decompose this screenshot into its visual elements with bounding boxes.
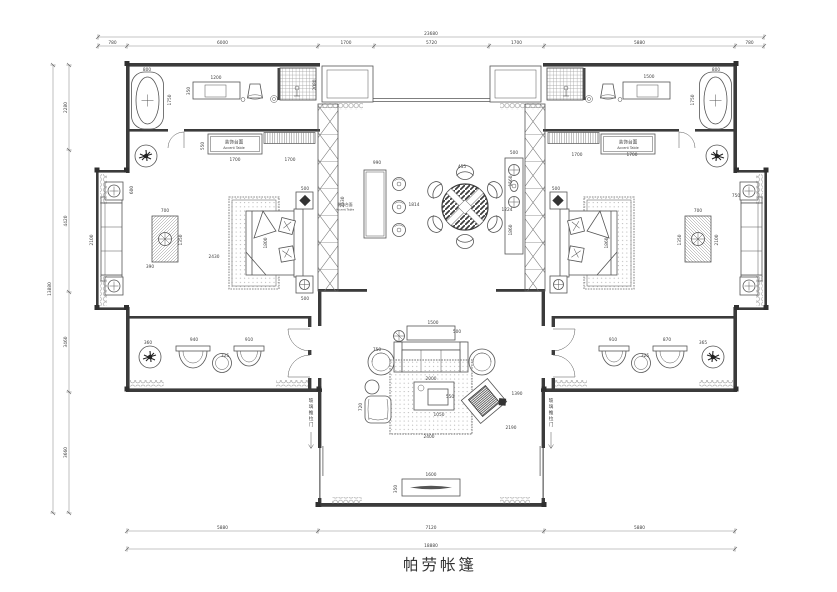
plan-label: Accent Table [223, 146, 244, 150]
dimension-text: 1700 [627, 152, 638, 158]
porch-coffee-table [152, 216, 178, 262]
bar-stool [393, 201, 406, 214]
vanity-chair [248, 84, 263, 99]
dining-table [442, 184, 488, 230]
dimension-text: 1050 [434, 412, 445, 418]
dimension-text: 2400 [424, 434, 435, 440]
dimension-chain: 78060001700572017005880780 [96, 40, 766, 48]
dimension-value: 5880 [634, 40, 645, 46]
dimension-text: 2000 [426, 376, 437, 382]
bathtub [132, 72, 164, 129]
dimension-value: 780 [108, 40, 116, 46]
dimension-text: 2080 [312, 79, 318, 90]
dimension-text: 325 [221, 353, 229, 359]
dimension-text: 1500 [428, 320, 439, 326]
left-wing [95, 61, 368, 507]
dimension-text: 350 [393, 485, 399, 493]
dimension-text: 1750 [167, 94, 173, 105]
shower [278, 68, 317, 100]
dimension-text: 1350 [178, 234, 184, 245]
tv-console [402, 479, 460, 496]
dining-chair [457, 235, 474, 249]
plan-label: 装饰台面 [619, 139, 638, 146]
plan-label: Accent Table [617, 146, 638, 150]
dimension-text: 990 [373, 160, 381, 166]
lounge-chair [365, 380, 391, 423]
plan-label: 装饰台面 [225, 139, 244, 146]
vanity-cabinet [193, 82, 278, 103]
dimension-text: 1700 [572, 152, 583, 158]
dimension-text: 455 [458, 164, 466, 170]
console-behind-sofa [394, 326, 456, 342]
dimension-text: 750 [373, 347, 381, 353]
plan-label: 装饰台面 [337, 202, 352, 207]
dimension-value: 5720 [426, 40, 437, 46]
dimension-value: 2280 [63, 102, 69, 113]
dimension-value: 780 [745, 40, 753, 46]
dimension-text: 2100 [89, 234, 95, 245]
dimension-text: 350 [186, 87, 192, 95]
curtain [500, 103, 541, 110]
porch-curtain [100, 276, 107, 306]
dimension-text: 700 [161, 208, 169, 214]
curtain [322, 103, 363, 110]
plant [139, 346, 161, 368]
curtain [130, 380, 164, 387]
bar-stool [393, 178, 406, 191]
plant [135, 145, 157, 167]
dimension-chain: 18880 [125, 543, 737, 551]
dimension-text: 1800 [263, 237, 269, 248]
plan-label: Accent Table [336, 208, 354, 212]
dimension-text: 940 [190, 337, 198, 343]
dimension-text: 2190 [506, 425, 517, 431]
dimension-chain: 2280442034603660 [63, 63, 71, 515]
plan-label: 玻璃推拉门 [309, 397, 314, 428]
dimension-value: 6000 [217, 40, 228, 46]
dimension-chain: 588071205880 [125, 525, 737, 533]
dimension-chain: 23680 [96, 31, 766, 39]
dimension-text: 1200 [211, 75, 222, 81]
dimension-text: 800 [712, 67, 720, 73]
dimension-value: 18880 [424, 543, 438, 549]
dimension-text: 500 [301, 186, 309, 192]
dimension-value: 3460 [63, 336, 69, 347]
dimension-text: 1860 [604, 237, 610, 248]
dimension-text: 1700 [285, 157, 296, 163]
dimension-text: 700 [694, 208, 702, 214]
dimension-text: 910 [609, 337, 617, 343]
dimension-text: 500 [453, 329, 461, 335]
dimension-value: 7120 [426, 525, 437, 531]
dimension-text: 325 [641, 353, 649, 359]
dimension-value: 1700 [341, 40, 352, 46]
service-counter [505, 158, 523, 254]
dimension-text: 870 [663, 337, 671, 343]
drawing-title: 帕劳帐篷 [403, 555, 477, 574]
dimension-text: 600 [129, 186, 135, 194]
dimension-value: 13880 [47, 282, 53, 296]
dimension-text: 360 [144, 340, 152, 346]
dimension-text: 1600 [426, 472, 437, 478]
slide-door-arrow [309, 432, 314, 449]
slide-door-arrow [549, 432, 554, 449]
dimension-text: 1350 [677, 234, 683, 245]
dimension-text: 1814 [409, 202, 420, 208]
porch-sofa [101, 197, 122, 281]
swivel-chair [469, 349, 495, 375]
porch-curtain [100, 174, 107, 204]
floor-plan-drawing: 8001750120035020805501700170050050024301… [0, 0, 837, 592]
closet-left [322, 66, 373, 102]
closet-right [490, 66, 541, 102]
terrace-wall [373, 99, 490, 102]
right-wing [496, 61, 769, 507]
dimension-value: 23680 [424, 31, 438, 37]
living-room [309, 326, 554, 507]
bottom-wall [318, 503, 545, 507]
dimension-text: 550 [200, 142, 206, 150]
dimension-text: 720 [358, 403, 364, 411]
dimension-text: 1750 [690, 94, 696, 105]
dimension-text: 500 [552, 186, 560, 192]
dimension-text: 1500 [644, 74, 655, 80]
curtain [500, 497, 530, 504]
dining-chair [485, 179, 506, 201]
dimension-text: 800 [143, 67, 151, 73]
dimension-text: 2100 [714, 234, 720, 245]
dimension-text: 1860 [508, 224, 514, 235]
dimension-text: 500 [301, 296, 309, 302]
dining-chair [425, 213, 446, 235]
dimension-text: 550 [446, 394, 454, 400]
curtain [276, 380, 308, 387]
bar-counter [364, 170, 386, 238]
curtain [332, 497, 362, 504]
dining-chair [425, 179, 446, 201]
dimension-value: 4420 [63, 215, 69, 226]
plan-label: 玻璃推拉门 [549, 397, 554, 428]
dimension-value: 5880 [634, 525, 645, 531]
dimension-value: 5880 [217, 525, 228, 531]
dimension-text: 1224 [502, 207, 513, 213]
dimension-text: 1560 [508, 175, 514, 186]
dining-chair [485, 213, 506, 235]
dimension-text: 1700 [230, 157, 241, 163]
dimension-text: 365 [699, 340, 707, 346]
dimension-chain: 13880 [47, 63, 55, 515]
dimension-text: 2430 [209, 254, 220, 260]
dimension-value: 3660 [63, 447, 69, 458]
dimension-text: 1390 [512, 391, 523, 397]
dimension-text: 750 [732, 193, 740, 199]
dimension-text: 390 [146, 264, 154, 270]
dimension-text: 910 [245, 337, 253, 343]
wardrobe-lattice [318, 104, 338, 291]
bar-stool [393, 224, 406, 237]
dimension-value: 1700 [511, 40, 522, 46]
dimension-text: 500 [510, 150, 518, 156]
